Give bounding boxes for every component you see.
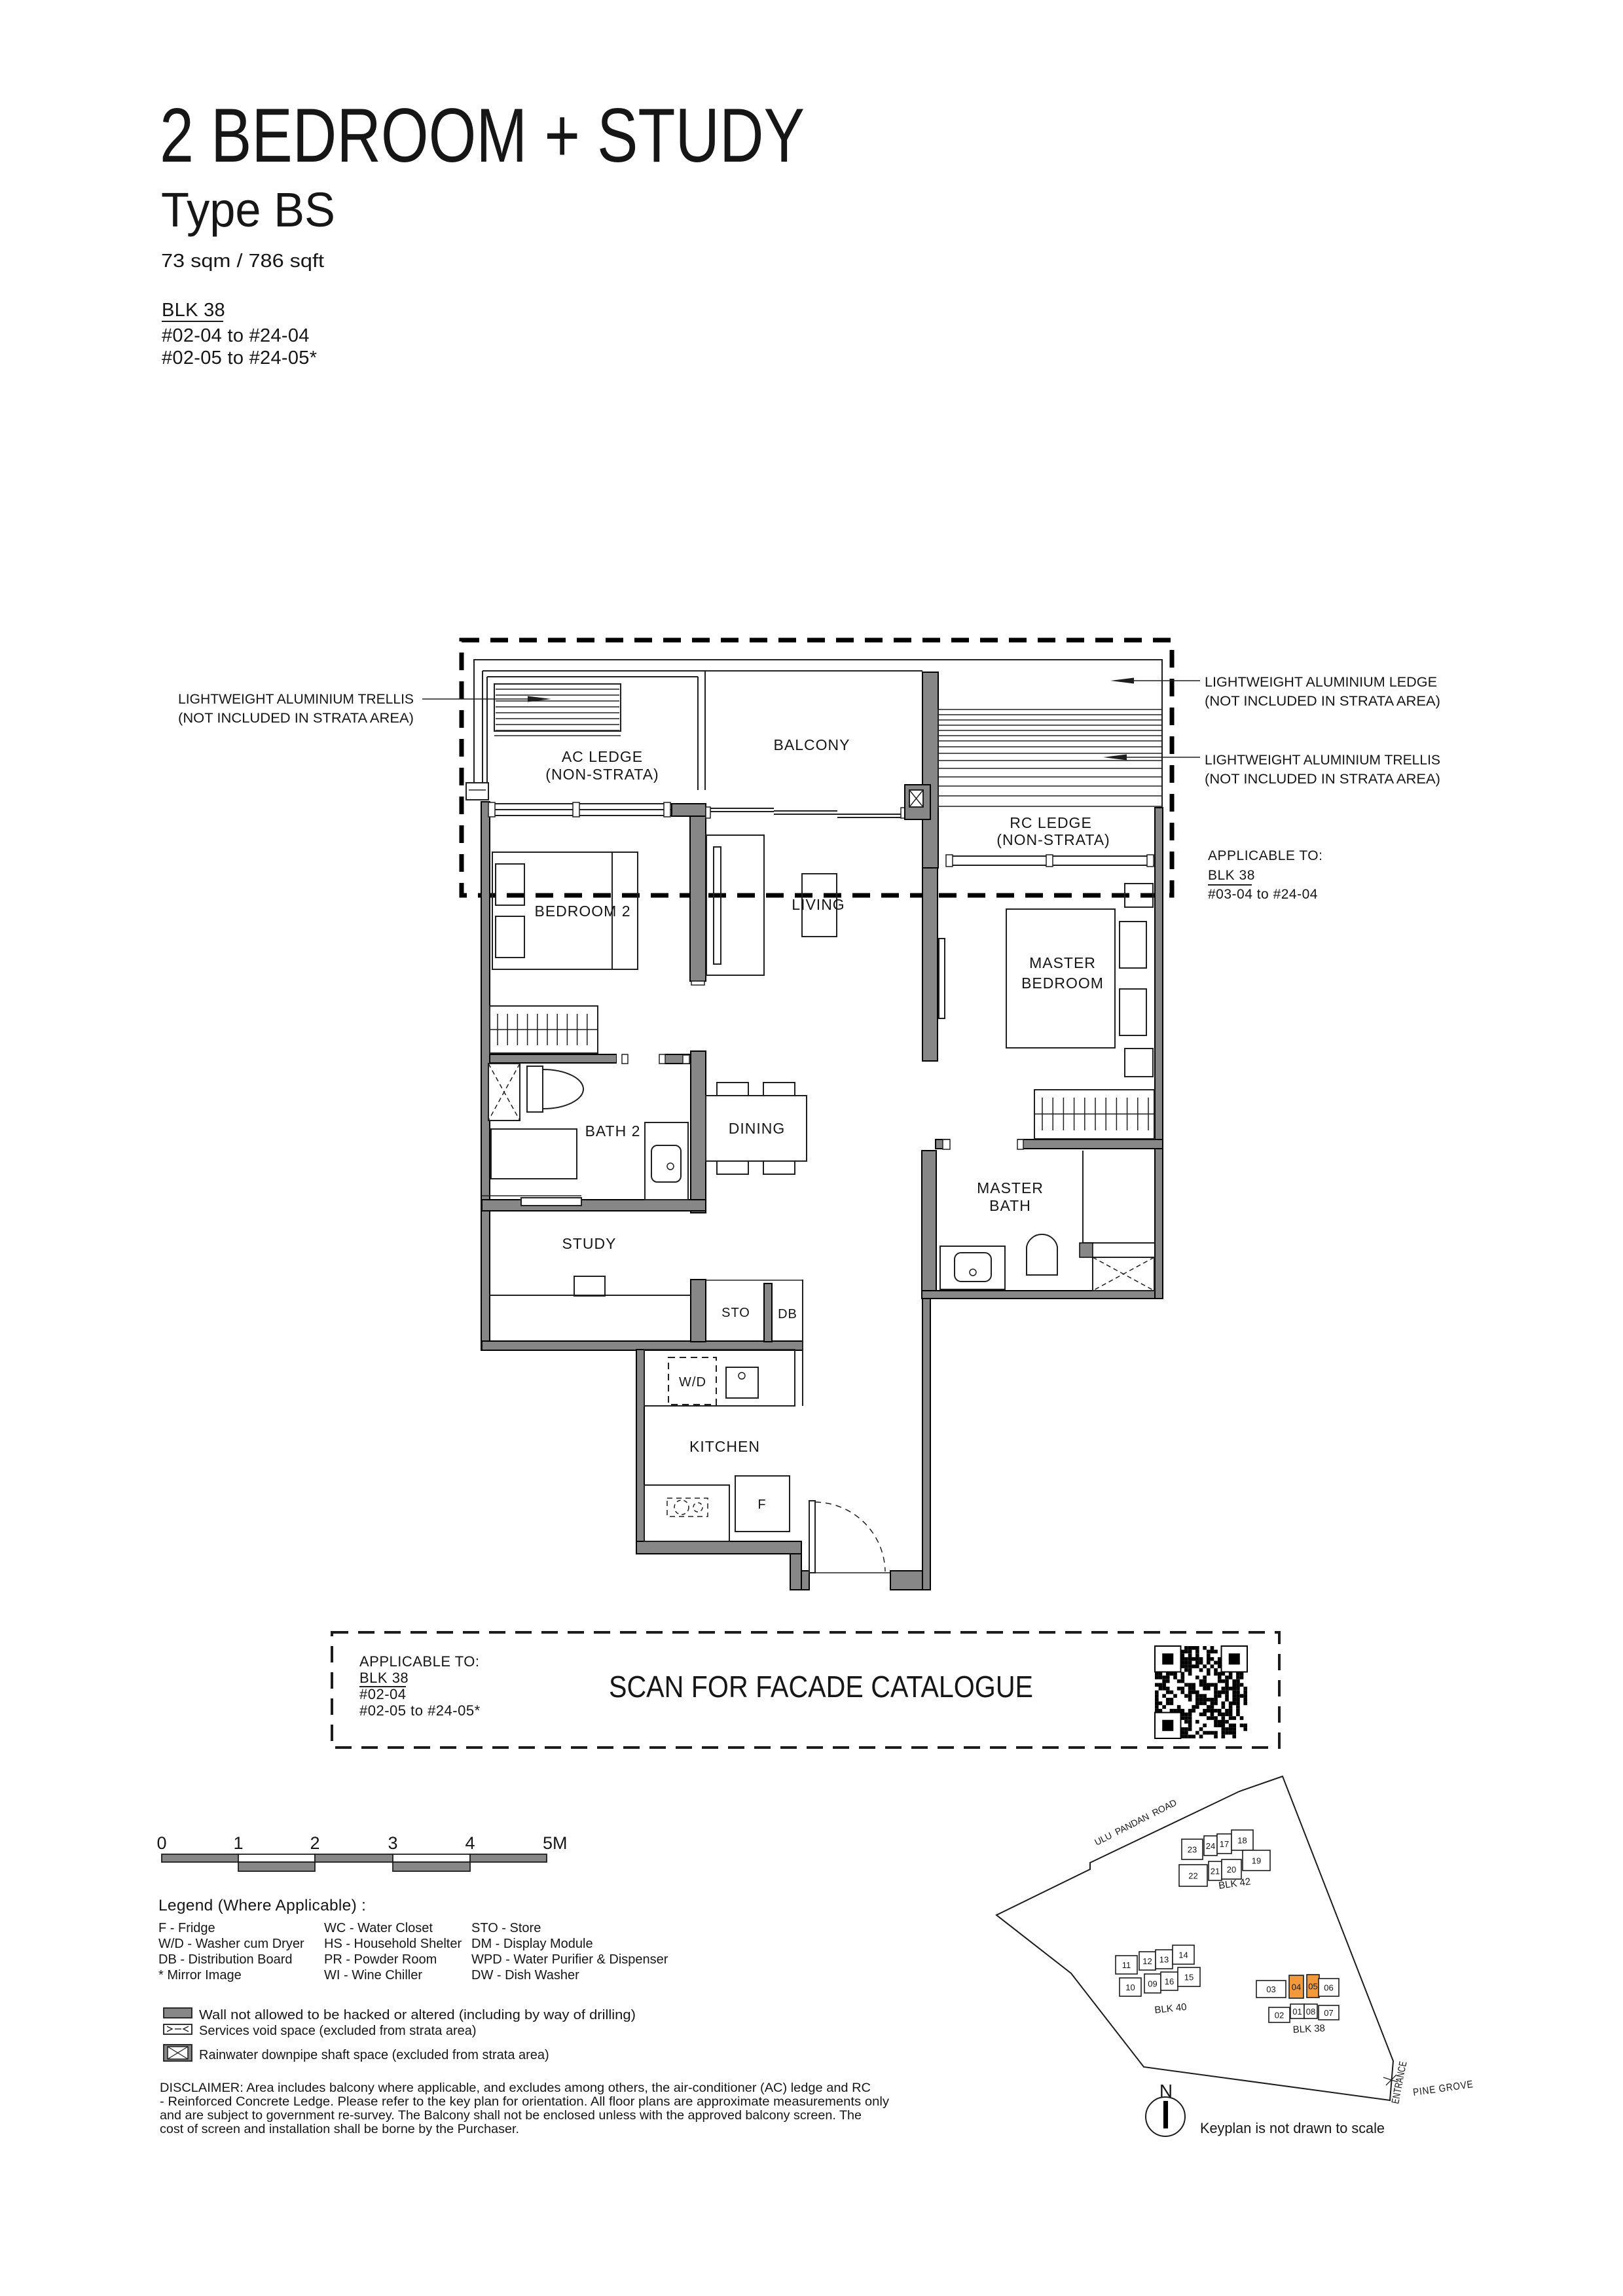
- svg-text:(NON-STRATA): (NON-STRATA): [545, 766, 659, 783]
- svg-text:- Reinforced Concrete Ledge. P: - Reinforced Concrete Ledge. Please refe…: [160, 2094, 889, 2109]
- svg-text:1: 1: [233, 1833, 243, 1853]
- svg-text:AC LEDGE: AC LEDGE: [562, 748, 643, 765]
- svg-text:(NON-STRATA): (NON-STRATA): [996, 831, 1110, 848]
- svg-text:WI - Wine Chiller: WI - Wine Chiller: [324, 1968, 422, 1982]
- svg-text:04: 04: [1292, 1982, 1301, 1992]
- svg-text:W/D: W/D: [679, 1375, 706, 1390]
- svg-text:#02-05 to #24-05*: #02-05 to #24-05*: [359, 1702, 481, 1719]
- svg-text:10: 10: [1125, 1982, 1135, 1992]
- svg-text:DISCLAIMER: Area includes balc: DISCLAIMER: Area includes balcony where …: [160, 2081, 871, 2095]
- svg-text:N: N: [1159, 2081, 1173, 2101]
- svg-text:LIGHTWEIGHT ALUMINIUM TRELLIS: LIGHTWEIGHT ALUMINIUM TRELLIS: [178, 692, 414, 707]
- svg-text:RC LEDGE: RC LEDGE: [1010, 814, 1092, 831]
- svg-text:and are subject to government: and are subject to government re-survey.…: [160, 2108, 862, 2123]
- svg-text:BLK 38: BLK 38: [162, 300, 225, 321]
- svg-text:MASTER: MASTER: [977, 1179, 1044, 1196]
- svg-text:F: F: [757, 1498, 766, 1512]
- svg-text:BLK 38: BLK 38: [359, 1670, 409, 1686]
- svg-text:2: 2: [310, 1833, 319, 1853]
- svg-text:09: 09: [1148, 1979, 1157, 1989]
- svg-text:17: 17: [1220, 1839, 1229, 1849]
- svg-text:BEDROOM 2: BEDROOM 2: [534, 903, 630, 920]
- svg-text:DB - Distribution Board: DB - Distribution Board: [158, 1952, 293, 1967]
- svg-text:21: 21: [1211, 1867, 1220, 1876]
- svg-text:APPLICABLE TO:: APPLICABLE TO:: [359, 1653, 480, 1670]
- svg-text:BLK 38: BLK 38: [1292, 2022, 1325, 2036]
- svg-text:02: 02: [1275, 2011, 1284, 2020]
- svg-text:2 BEDROOM + STUDY: 2 BEDROOM + STUDY: [160, 92, 805, 178]
- svg-text:73 sqm / 786 sqft: 73 sqm / 786 sqft: [161, 251, 324, 272]
- svg-text:Type BS: Type BS: [161, 183, 335, 237]
- svg-text:* Mirror Image: * Mirror Image: [158, 1968, 242, 1982]
- svg-text:DINING: DINING: [729, 1120, 786, 1137]
- svg-text:05: 05: [1308, 1982, 1317, 1992]
- svg-text:07: 07: [1324, 2008, 1333, 2018]
- svg-text:WPD - Water Purifier & Dispens: WPD - Water Purifier & Dispenser: [471, 1952, 668, 1967]
- svg-text:0: 0: [156, 1833, 166, 1853]
- svg-text:01: 01: [1292, 2007, 1302, 2017]
- svg-text:Keyplan is not drawn to scale: Keyplan is not drawn to scale: [1200, 2120, 1385, 2136]
- svg-text:BLK 38: BLK 38: [1208, 868, 1255, 883]
- svg-text:STO: STO: [721, 1306, 750, 1320]
- svg-text:LIGHTWEIGHT ALUMINIUM TRELLIS: LIGHTWEIGHT ALUMINIUM TRELLIS: [1205, 753, 1440, 768]
- svg-text:Rainwater downpipe shaft space: Rainwater downpipe shaft space (excluded…: [199, 2048, 549, 2062]
- svg-text:F - Fridge: F - Fridge: [158, 1921, 215, 1935]
- svg-text:5M: 5M: [543, 1833, 568, 1853]
- svg-text:APPLICABLE TO:: APPLICABLE TO:: [1208, 848, 1322, 863]
- svg-text:DW - Dish Washer: DW - Dish Washer: [471, 1968, 579, 1982]
- svg-text:03: 03: [1266, 1984, 1275, 1994]
- svg-text:11: 11: [1122, 1960, 1131, 1970]
- svg-text:BATH 2: BATH 2: [585, 1122, 641, 1139]
- svg-text:LIGHTWEIGHT ALUMINIUM LEDGE: LIGHTWEIGHT ALUMINIUM LEDGE: [1205, 675, 1437, 690]
- svg-text:06: 06: [1324, 1983, 1333, 1993]
- svg-text:HS - Household Shelter: HS - Household Shelter: [324, 1937, 462, 1951]
- svg-text:22: 22: [1188, 1871, 1197, 1881]
- svg-text:24: 24: [1206, 1841, 1215, 1851]
- svg-text:W/D - Washer cum Dryer: W/D - Washer cum Dryer: [158, 1937, 304, 1951]
- svg-text:SCAN FOR FACADE CATALOGUE: SCAN FOR FACADE CATALOGUE: [609, 1670, 1033, 1704]
- svg-text:#02-04: #02-04: [359, 1686, 407, 1702]
- svg-text:BALCONY: BALCONY: [774, 736, 850, 753]
- svg-text:(NOT INCLUDED IN STRATA AREA): (NOT INCLUDED IN STRATA AREA): [1205, 694, 1440, 709]
- svg-text:cost of screen and installatio: cost of screen and installation shall be…: [160, 2122, 519, 2136]
- svg-text:DB: DB: [778, 1307, 797, 1321]
- svg-text:08: 08: [1306, 2007, 1315, 2017]
- svg-text:BEDROOM: BEDROOM: [1021, 975, 1104, 992]
- svg-text:LIVING: LIVING: [792, 896, 845, 913]
- svg-text:(NOT INCLUDED IN STRATA AREA): (NOT INCLUDED IN STRATA AREA): [1205, 772, 1440, 787]
- svg-text:STUDY: STUDY: [562, 1235, 617, 1252]
- svg-text:18: 18: [1237, 1836, 1247, 1846]
- svg-text:DM - Display Module: DM - Display Module: [471, 1937, 593, 1951]
- svg-text:MASTER: MASTER: [1029, 954, 1096, 971]
- svg-text:#02-05 to #24-05*: #02-05 to #24-05*: [162, 348, 317, 368]
- svg-text:KITCHEN: KITCHEN: [689, 1438, 760, 1455]
- svg-text:14: 14: [1178, 1950, 1188, 1960]
- svg-text:Legend (Where Applicable) :: Legend (Where Applicable) :: [158, 1897, 366, 1914]
- svg-text:3: 3: [388, 1833, 397, 1853]
- svg-text:#03-04 to #24-04: #03-04 to #24-04: [1208, 887, 1318, 902]
- svg-text:(NOT INCLUDED IN STRATA AREA): (NOT INCLUDED IN STRATA AREA): [178, 711, 414, 726]
- svg-text:16: 16: [1165, 1977, 1174, 1986]
- svg-text:WC - Water Closet: WC - Water Closet: [324, 1921, 433, 1935]
- svg-text:20: 20: [1227, 1865, 1236, 1874]
- svg-text:PR - Powder Room: PR - Powder Room: [324, 1952, 437, 1967]
- svg-text:13: 13: [1159, 1955, 1169, 1965]
- svg-text:Wall not allowed to be hacked: Wall not allowed to be hacked or altered…: [199, 2008, 636, 2022]
- svg-text:STO - Store: STO - Store: [471, 1921, 541, 1935]
- svg-text:4: 4: [465, 1833, 475, 1853]
- svg-text:12: 12: [1142, 1956, 1152, 1966]
- svg-text:#02-04 to #24-04: #02-04 to #24-04: [162, 325, 310, 346]
- svg-text:23: 23: [1188, 1845, 1197, 1855]
- svg-text:15: 15: [1184, 1973, 1194, 1982]
- svg-text:Services void space (excluded: Services void space (excluded from strat…: [199, 2024, 477, 2038]
- svg-text:BATH: BATH: [989, 1197, 1031, 1214]
- svg-text:19: 19: [1252, 1856, 1261, 1866]
